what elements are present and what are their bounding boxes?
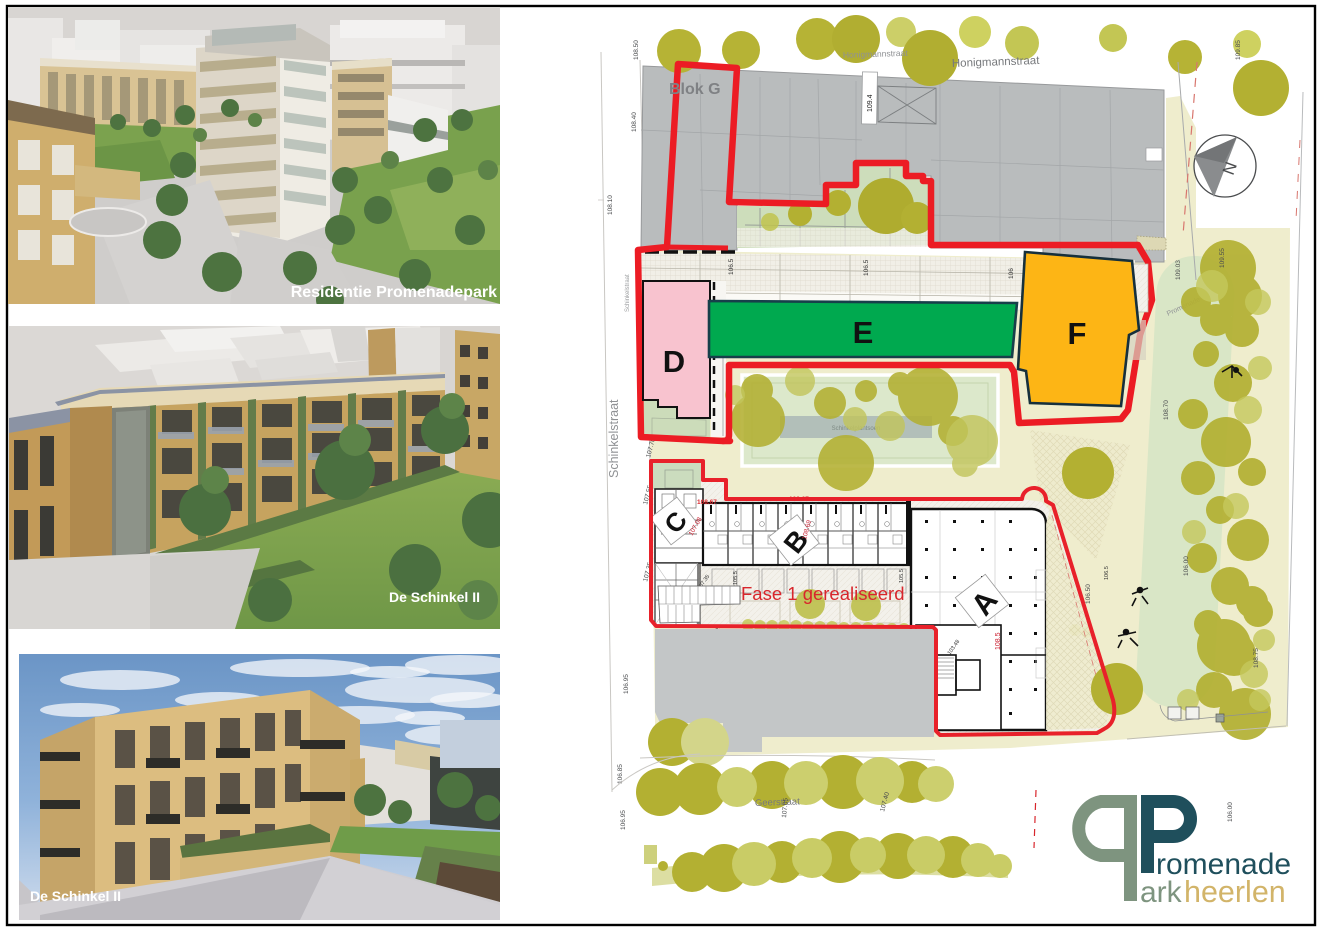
svg-text:E: E xyxy=(853,315,874,350)
svg-text:Blok G: Blok G xyxy=(669,81,721,98)
svg-text:109.03: 109.03 xyxy=(1175,260,1182,280)
svg-text:106.00: 106.00 xyxy=(1183,556,1190,576)
svg-text:heerlen: heerlen xyxy=(1184,875,1286,909)
svg-text:Residentie Promenadepark: Residentie Promenadepark xyxy=(291,284,497,301)
svg-text:108.70: 108.70 xyxy=(1163,400,1170,420)
svg-text:109.85: 109.85 xyxy=(1235,40,1242,60)
svg-text:105.5: 105.5 xyxy=(733,571,739,585)
svg-text:108.75: 108.75 xyxy=(1253,648,1260,668)
svg-text:F: F xyxy=(1068,316,1087,351)
svg-text:De Schinkel II: De Schinkel II xyxy=(30,888,121,904)
svg-text:Schinkelstraat: Schinkelstraat xyxy=(607,399,621,478)
svg-text:109.4: 109.4 xyxy=(867,94,874,112)
svg-text:106.5: 106.5 xyxy=(863,259,870,276)
svg-text:106.5: 106.5 xyxy=(1104,566,1110,580)
svg-text:D: D xyxy=(663,344,685,379)
svg-text:106.00: 106.00 xyxy=(1227,802,1234,822)
svg-text:106.95: 106.95 xyxy=(620,810,627,830)
svg-text:105.5: 105.5 xyxy=(899,569,905,583)
svg-text:108.10: 108.10 xyxy=(607,195,614,215)
svg-text:109.55: 109.55 xyxy=(1219,248,1226,268)
svg-text:106.50: 106.50 xyxy=(1085,584,1092,604)
svg-text:108.67: 108.67 xyxy=(697,499,717,506)
svg-text:108.40: 108.40 xyxy=(631,112,638,132)
svg-text:De Schinkel II: De Schinkel II xyxy=(389,589,480,605)
svg-text:108.5: 108.5 xyxy=(995,632,1002,650)
svg-text:106: 106 xyxy=(1008,268,1015,279)
svg-text:108.50: 108.50 xyxy=(633,40,640,60)
svg-text:Schinkelstraat: Schinkelstraat xyxy=(625,274,631,312)
svg-text:106.5: 106.5 xyxy=(728,258,735,275)
svg-text:106.95: 106.95 xyxy=(623,674,630,694)
svg-text:Geerstraat: Geerstraat xyxy=(755,796,801,809)
svg-text:ark: ark xyxy=(1140,876,1183,909)
svg-text:Fase 1 gerealiseerd: Fase 1 gerealiseerd xyxy=(741,583,905,604)
